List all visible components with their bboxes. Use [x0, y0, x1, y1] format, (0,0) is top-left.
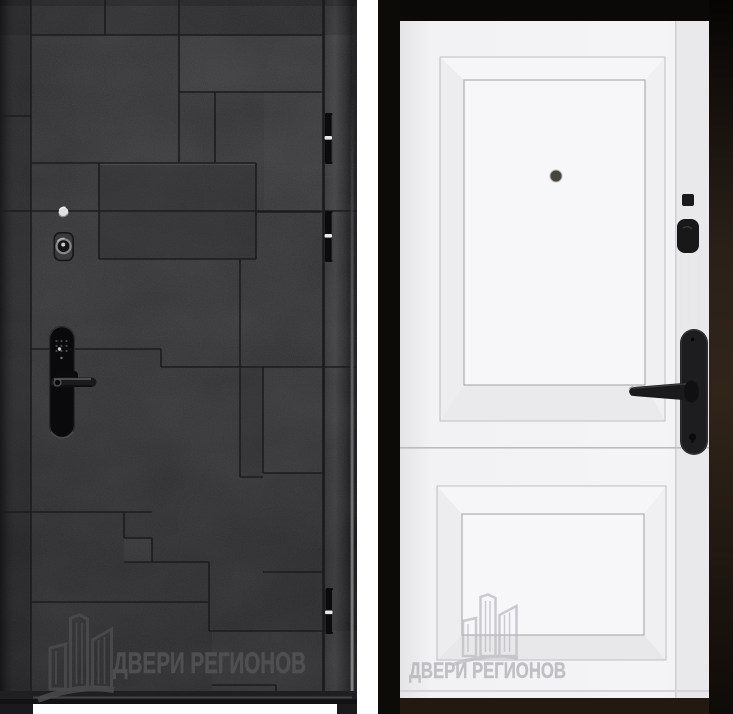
svg-text:ДВЕРИ РЕГИОНОВ: ДВЕРИ РЕГИОНОВ: [409, 658, 566, 683]
svg-text:ДВЕРИ РЕГИОНОВ: ДВЕРИ РЕГИОНОВ: [113, 647, 306, 680]
